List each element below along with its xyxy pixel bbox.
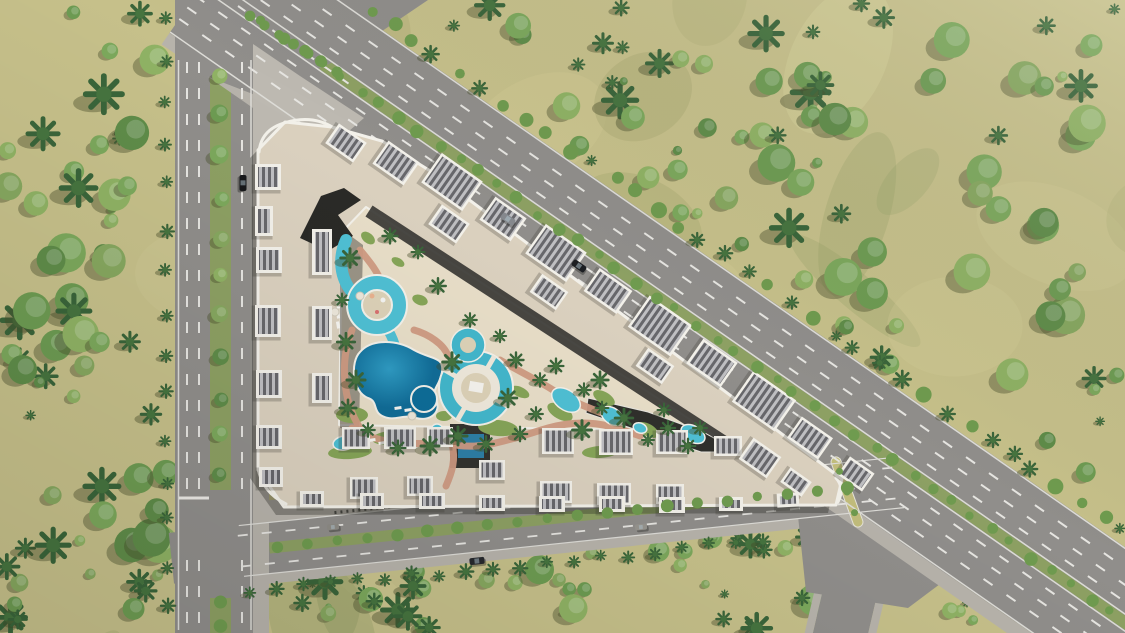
- scene-svg: [0, 0, 1125, 633]
- lighting: [0, 0, 1125, 633]
- aerial-site-render: [0, 0, 1125, 633]
- light-overlay: [0, 0, 1125, 633]
